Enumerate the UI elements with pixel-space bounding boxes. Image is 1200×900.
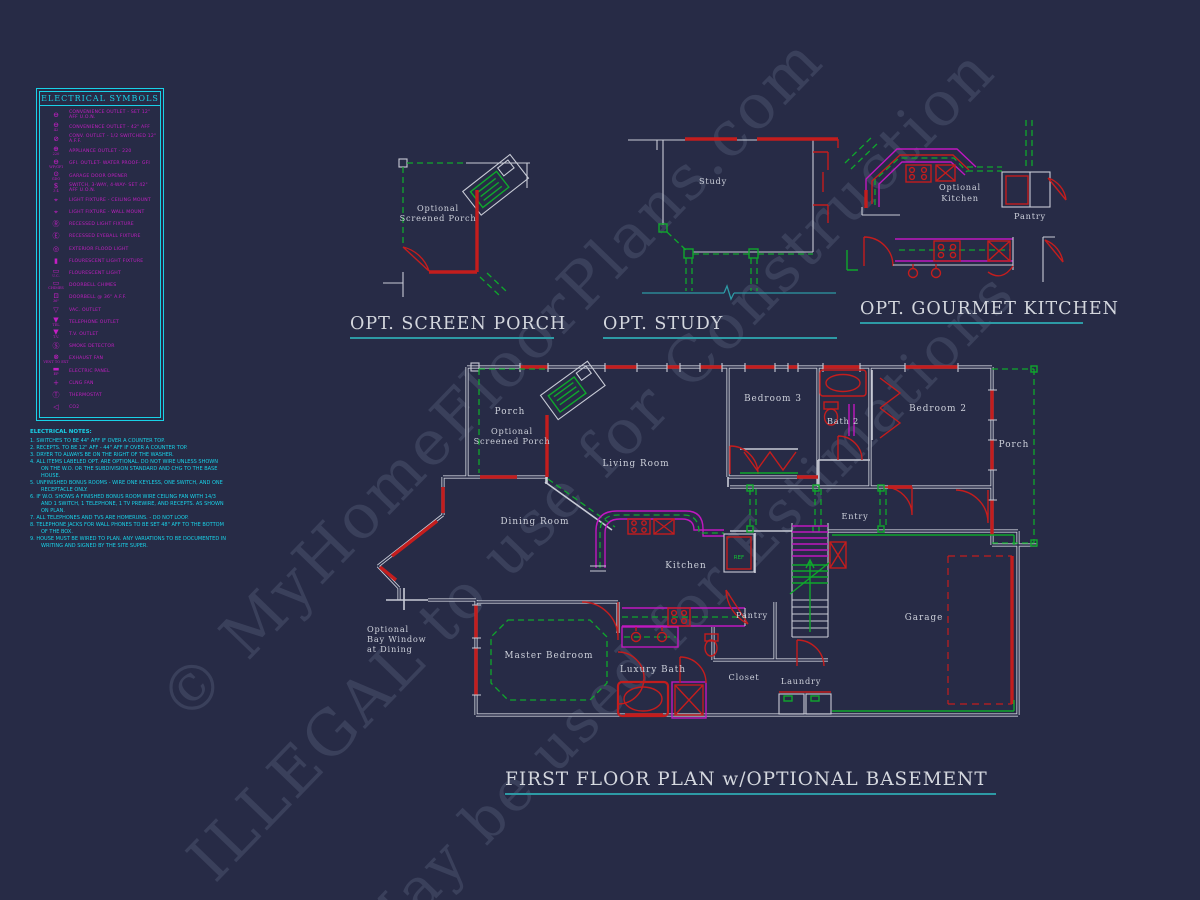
opt-gourmet-kitchen-title: OPT. GOURMET KITCHEN [860,299,1083,324]
room-label-dining: Dining Room [501,517,570,527]
fluorescent-light-icon: ▭U.C. [43,268,69,279]
doorbell-icon: ⊡36" [43,293,69,304]
legend-item-label: CONV. OUTLET - 1/2 SWITCHED 12" A.F.F. [69,134,158,144]
legend-item: ▬EPELECTRIC PANEL [43,365,158,377]
electrical-note: 4. ALL ITEMS LABELED OPT. ARE OPTIONAL. … [30,459,226,480]
switched-outlet-icon: ⊘ [43,136,69,143]
legend-item-label: DOORBELL CHIMES [69,283,116,288]
legend-item: ▼TELTELEPHONE OUTLET [43,316,158,328]
co2-icon: ◁ [43,404,69,411]
legend-item-label: FLOURESCENT LIGHT [69,271,121,276]
flood-light-icon: ◎ [43,246,69,253]
sp-label-line1: Optional [417,203,459,213]
legend-item: ⌖LIGHT FIXTURE - CEILING MOUNT [43,194,158,206]
electrical-note: 6. IF W.O. SHOWS A FINISHED BONUS ROOM W… [30,494,226,515]
convenience-outlet-icon: ⊖ [43,112,69,119]
legend-item-label: VAC. OUTLET [69,308,101,313]
fluorescent-fixture-icon: ▮ [43,258,69,265]
legend-item-label: GARAGE DOOR OPENER [69,174,128,179]
room-label-osp-line2: Screened Porch [474,436,551,446]
gk-label-line1: Optional [939,182,981,192]
legend-item-label: CONVENIENCE OUTLET - 42" AFF [69,125,150,130]
legend-item-label: CO2 [69,405,79,410]
legend-item-label: CLNG FAN [69,381,94,386]
room-label-kitchen: Kitchen [665,561,706,571]
room-label-laundry: Laundry [781,676,821,686]
legend-item: ⊘CONV. OUTLET - 1/2 SWITCHED 12" A.F.F. [43,133,158,145]
opt-screen-porch-drawing: Optional Screened Porch [383,155,530,297]
sp-label-line2: Screened Porch [400,213,477,223]
room-label-entry: Entry [841,511,868,521]
legend-item: ⊖WP/GFIGFI. OUTLET- WATER PROOF- GFI [43,158,158,170]
vac-outlet-icon: ▽ [43,307,69,314]
room-label-bath2: Bath 2 [827,416,859,426]
room-label-bedroom3: Bedroom 3 [744,394,802,404]
thermostat-icon: Ⓣ [43,392,69,399]
legend-item: ⌖LIGHT FIXTURE - WALL MOUNT [43,207,158,219]
electrical-symbols-legend: ELECTRICAL SYMBOLS ⊖CONVENIENCE OUTLET -… [36,88,164,421]
electrical-note: 5. UNFINISHED BONUS ROOMS - WIRE ONE KEY… [30,480,226,494]
tv-outlet-icon: ▼T.V. [43,329,69,340]
legend-item-label: APPLIANCE OUTLET - 220 [69,149,132,154]
opt-study-drawing: Study [628,139,838,299]
legend-item: ▽VAC. OUTLET [43,304,158,316]
legend-item: ⊕220APPLIANCE OUTLET - 220 [43,146,158,158]
legend-item: ▭CHIMESDOORBELL CHIMES [43,280,158,292]
switch-icon: $3 4 [43,183,69,194]
bay-note-line1: Optional [367,624,409,634]
eyeball-light-icon: Ⓔ [43,233,69,240]
legend-item: ⊖CONVENIENCE OUTLET - SET 12" AFF U.O.N. [43,109,158,121]
legend-item-label: ELECTRIC PANEL [69,369,110,374]
room-label-living: Living Room [602,459,669,469]
opt-screen-porch-title: OPT. SCREEN PORCH [350,314,554,339]
convenience-outlet-42-icon: ⊖42 [43,122,69,133]
legend-item-label: FLOURESCENT LIGHT FIXTURE [69,259,143,264]
electrical-note: 9. HOUSE MUST BE WIRED TO PLAN. ANY VARI… [30,536,226,550]
legend-item: ⓈSMOKE DETECTOR [43,341,158,353]
ceiling-fan-icon: + [43,380,69,387]
legend-item: ▮FLOURESCENT LIGHT FIXTURE [43,255,158,267]
legend-item: ⓉTHERMOSTAT [43,389,158,401]
room-label-pantry: Pantry [736,610,768,620]
study-room-label: Study [699,176,727,186]
room-label-garage: Garage [905,613,944,623]
legend-item-label: LIGHT FIXTURE - WALL MOUNT [69,210,145,215]
first-floor-plan-drawing: Porch Optional Screened Porch Living Roo… [367,361,1037,718]
electric-panel-icon: ▬EP [43,366,69,377]
legend-item: +CLNG FAN [43,377,158,389]
legend-item: ⊖42CONVENIENCE OUTLET - 42" AFF [43,121,158,133]
smoke-detector-icon: Ⓢ [43,343,69,350]
legend-item: ◎EXTERIOR FLOOD LIGHT [43,243,158,255]
room-label-porch-right: Porch [999,440,1030,450]
legend-item: ◁CO2 [43,402,158,414]
first-floor-plan-title: FIRST FLOOR PLAN w/OPTIONAL BASEMENT [505,769,996,795]
opt-study-title: OPT. STUDY [603,314,837,339]
electrical-note: 7. ALL TELEPHONES AND TVS ARE HOMERUNS. … [30,515,226,522]
bay-note-line2: Bay Window [367,634,426,644]
legend-item: ▭U.C.FLOURESCENT LIGHT [43,267,158,279]
legend-title: ELECTRICAL SYMBOLS [40,92,160,106]
legend-item-label: RECESSED LIGHT FIXTURE [69,222,134,227]
gk-pantry-label: Pantry [1014,211,1046,221]
legend-item: ⓇRECESSED LIGHT FIXTURE [43,219,158,231]
legend-item-label: CONVENIENCE OUTLET - SET 12" AFF U.O.N. [69,110,158,120]
legend-item: ⊗VENT TO EXTEXHAUST FAN [43,353,158,365]
legend-item: ⒺRECESSED EYEBALL FIXTURE [43,231,158,243]
legend-item-label: SMOKE DETECTOR [69,344,115,349]
recessed-light-icon: Ⓡ [43,221,69,228]
legend-item: ⊙GDOGARAGE DOOR OPENER [43,170,158,182]
room-label-bedroom2: Bedroom 2 [909,404,967,414]
electrical-notes: ELECTRICAL NOTES: 1. SWITCHES TO BE 44" … [30,429,226,550]
legend-item-label: LIGHT FIXTURE - CEILING MOUNT [69,198,151,203]
opt-gourmet-kitchen-drawing: Optional Kitchen Pantry [845,120,1066,282]
electrical-note: 3. DRYER TO ALWAYS BE ON THE RIGHT OF TH… [30,452,226,459]
exhaust-fan-icon: ⊗VENT TO EXT [43,354,69,365]
electrical-note: 2. RECEPTS. TO BE 12" AFF - 44" AFF IF O… [30,445,226,452]
legend-item-label: RECESSED EYEBALL FIXTURE [69,234,141,239]
gfi-outlet-icon: ⊖WP/GFI [43,159,69,170]
electrical-note: 8. TELEPHONE JACKS FOR WALL PHONES TO BE… [30,522,226,536]
ceiling-light-icon: ⌖ [43,197,69,204]
room-label-porch: Porch [495,407,526,417]
appliance-outlet-icon: ⊕220 [43,146,69,157]
legend-item: $3 4SWITCH, 3-WAY, 4-WAY- SET 42" AFF U.… [43,182,158,194]
electrical-notes-title: ELECTRICAL NOTES: [30,429,226,437]
telephone-outlet-icon: ▼TEL [43,317,69,328]
wall-light-icon: ⌖ [43,209,69,216]
room-label-closet: Closet [729,672,760,682]
room-label-luxury-bath: Luxury Bath [620,665,686,675]
garage-door-opener-icon: ⊙GDO [43,171,69,182]
legend-item-label: TELEPHONE OUTLET [69,320,119,325]
legend-item-label: THERMOSTAT [69,393,102,398]
legend-item-label: EXHAUST FAN [69,356,103,361]
legend-item: ▼T.V.T.V. OUTLET [43,328,158,340]
legend-item-label: DOORBELL @ 36" A.F.F. [69,295,127,300]
legend-item-label: T.V. OUTLET [69,332,98,337]
legend-item: ⊡36"DOORBELL @ 36" A.F.F. [43,292,158,304]
room-label-osp-line1: Optional [491,426,533,436]
ref-label: REF [734,555,744,561]
legend-item-label: EXTERIOR FLOOD LIGHT [69,247,129,252]
bay-note-line3: at Dining [367,644,413,654]
blueprint-canvas: © MyHomeFloorPlans.com ILLEGAL to use fo… [0,0,1200,900]
doorbell-chimes-icon: ▭CHIMES [43,280,69,291]
legend-item-label: GFI. OUTLET- WATER PROOF- GFI [69,161,150,166]
gk-label-line2: Kitchen [941,193,979,203]
electrical-note: 1. SWITCHES TO BE 44" AFF IF OVER A COUN… [30,438,226,445]
legend-item-label: SWITCH, 3-WAY, 4-WAY- SET 42" AFF U.O.N. [69,183,158,193]
room-label-master: Master Bedroom [505,651,594,661]
